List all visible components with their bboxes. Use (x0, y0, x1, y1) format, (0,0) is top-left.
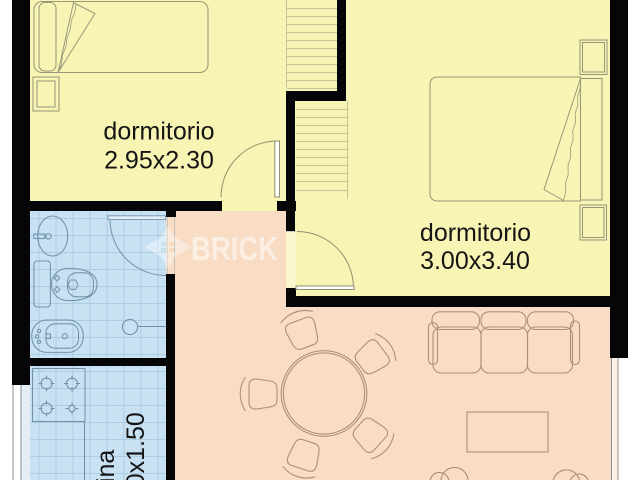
svg-text:BRICK: BRICK (191, 230, 278, 267)
svg-text:2.20x1.50: 2.20x1.50 (122, 412, 150, 480)
svg-text:2.95x2.30: 2.95x2.30 (104, 147, 214, 175)
svg-text:3.00x3.40: 3.00x3.40 (420, 247, 530, 275)
svg-text:dormitorio: dormitorio (420, 219, 531, 247)
svg-text:dormitorio: dormitorio (103, 118, 214, 146)
svg-text:cocina: cocina (92, 450, 120, 480)
